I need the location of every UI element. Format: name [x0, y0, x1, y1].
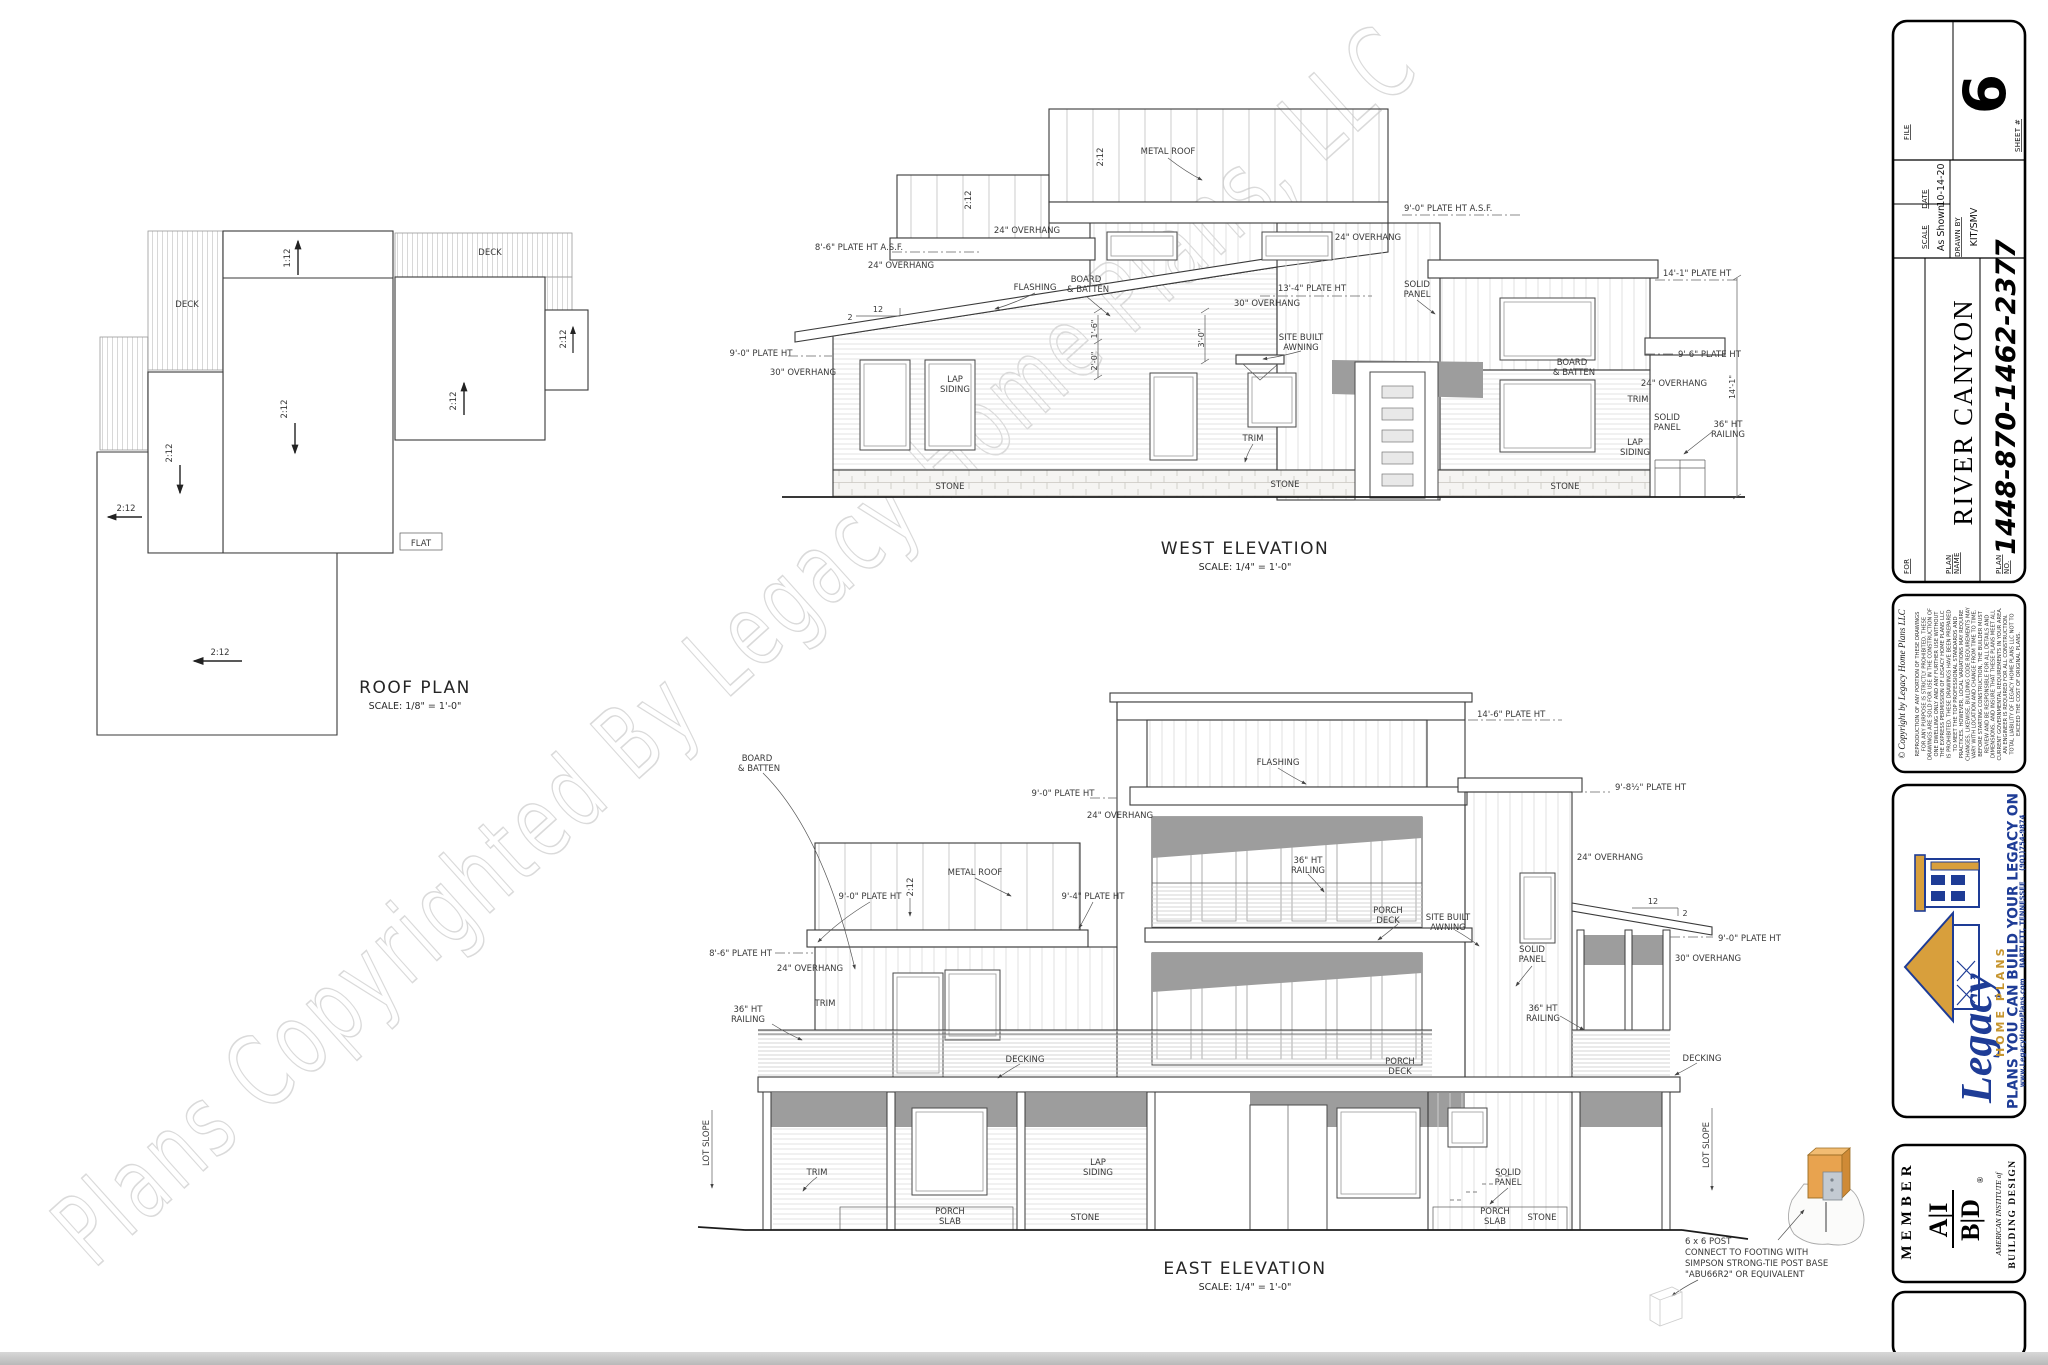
label-rail36-2: RAILING	[1291, 866, 1325, 876]
title-block-column: FILE SHEET # 6 DATE 10-14-20 SCALE As Sh…	[1870, 0, 2048, 1365]
deck-label-left: DECK	[175, 300, 199, 310]
label-overhang30: 30" OVERHANG	[1675, 954, 1741, 964]
label-site-built-2: AWNING	[1283, 343, 1319, 353]
copyright-disclaimer: REPRODUCTION OF ANY PORTION OF THESE DRA…	[1915, 606, 2022, 760]
title-block: FILE SHEET # 6 DATE 10-14-20 SCALE As Sh…	[1893, 21, 2025, 582]
label-slope: 2:12	[906, 877, 916, 896]
label-solid: SOLID	[1654, 413, 1680, 423]
empty-block	[1893, 1292, 2025, 1358]
label-siding: SIDING	[940, 385, 970, 395]
legacy-logo-block: Legacy HOME PLANS PLANS YOU CAN BUILD YO…	[1893, 785, 2027, 1117]
disclaimer-line: EXCEED THE COST OF ORIGINAL PLANS.	[2016, 632, 2022, 736]
west-scale: SCALE: 1/4" = 1'-0"	[1199, 562, 1292, 573]
disclaimer-line: IS PROHIBITED. THESE DRAWINGS HAVE BEEN …	[1947, 610, 1953, 759]
post-note-line4: "ABU66R2" OR EQUIVALENT	[1685, 1270, 1805, 1280]
label-board: BOARD	[742, 754, 773, 764]
label-metal-roof: METAL ROOF	[1141, 147, 1196, 157]
roof-plan-title: ROOF PLAN	[359, 678, 471, 698]
label-overhang30: 30" OVERHANG	[1234, 299, 1300, 309]
slope-2-12-bottom: 2:12	[210, 648, 229, 658]
label-plate-90: 9'-0" PLATE HT	[730, 349, 794, 359]
label-lap: LAP	[1090, 1158, 1106, 1168]
slope-1-12: 1:12	[283, 248, 293, 267]
label-rail36-1: 36" HT	[1528, 1004, 1558, 1014]
label-trim: TRIM	[806, 1168, 828, 1178]
roof-plan-scale: SCALE: 1/8" = 1'-0"	[369, 701, 462, 712]
label-solid: SOLID	[1404, 280, 1430, 290]
label-site-built-1: SITE BUILT	[1426, 913, 1471, 923]
drawn-by-label: DRAWN BY	[1954, 217, 1962, 257]
west-title: WEST ELEVATION	[1161, 539, 1329, 559]
date-label: DATE	[1921, 189, 1929, 208]
disclaimer-line: TO MEET THE TOP PROFESSIONAL STANDARDS A…	[1953, 617, 1959, 753]
label-plate-90: 9'-0" PLATE HT	[1718, 934, 1782, 944]
aibd-reg: ®	[1976, 1176, 1985, 1184]
scan-edge-bottom	[0, 1352, 2048, 1365]
label-panel: PANEL	[1519, 955, 1546, 965]
legacy-website: www.LegacyHomePlans.com	[2019, 978, 2027, 1087]
label-slab: SLAB	[939, 1217, 961, 1227]
label-rail36-2: RAILING	[731, 1015, 765, 1025]
disclaimer-line: REPRODUCTION OF ANY PORTION OF THESE DRA…	[1915, 612, 1921, 757]
label-slab: SLAB	[1484, 1217, 1506, 1227]
date-value: 10-14-20	[1936, 163, 1947, 206]
label-flashing: FLASHING	[1014, 283, 1057, 293]
dim-1-6: 1'-6"	[1090, 320, 1099, 339]
svg-text:www.LegacyHomePlans.com: www.LegacyHomePlans.com BARTLETT, TENNES…	[2019, 814, 2027, 1087]
label-stone: STONE	[1070, 1213, 1099, 1223]
east-scale: SCALE: 1/4" = 1'-0"	[1199, 1282, 1292, 1293]
disclaimer-line: VARY WITH LOCATION AND CHANGE FROM TIME …	[1972, 609, 1978, 758]
label-panel: PANEL	[1495, 1178, 1522, 1188]
label-rail36-2: RAILING	[1711, 430, 1745, 440]
label-flashing: FLASHING	[1257, 758, 1300, 768]
west-elevation: METAL ROOF 2:12 2:12 9'-0" PLATE HT A.S.…	[560, 60, 1780, 590]
label-site-built-2: AWNING	[1430, 923, 1466, 933]
dim-2-0: 2'-0"	[1090, 352, 1099, 371]
for-label: FOR	[1903, 559, 1911, 574]
label-plate-985: 9'-8½" PLATE HT	[1615, 783, 1687, 793]
copyright-block: © Copyright by Legacy Home Plans LLC REP…	[1893, 595, 2025, 772]
label-solid: SOLID	[1519, 945, 1545, 955]
sheet-number: 6	[1951, 74, 2019, 114]
label-12: 12	[873, 305, 883, 314]
disclaimer-line: TOTAL LIABILITY OF LEGACY HOME PLANS LLC…	[2010, 613, 2016, 755]
label-decking: DECKING	[1683, 1054, 1722, 1064]
label-plate-134: 13'-4" PLATE HT	[1278, 284, 1347, 294]
disclaimer-line: REVIEW AND BE RESPONSIBLE FOR ALL DETAIL…	[1984, 615, 1990, 754]
east-title: EAST ELEVATION	[1163, 1259, 1326, 1279]
label-deck: DECK	[1376, 916, 1400, 926]
label-porch: PORCH	[1385, 1057, 1415, 1067]
label-plate-94: 9'-4" PLATE HT	[1062, 892, 1126, 902]
label-overhang24: 24" OVERHANG	[1087, 811, 1153, 821]
copyright-title: © Copyright by Legacy Home Plans LLC	[1897, 608, 1907, 758]
label-lot-slope: LOT SLOPE	[702, 1120, 712, 1166]
dim-14-1: 14'-1"	[1728, 375, 1737, 399]
scale-label: SCALE	[1921, 225, 1929, 249]
label-batten: & BATTEN	[1067, 285, 1109, 295]
aibd-member-block: MEMBER A|I B|D ® AMERICAN INSTITUTE of B…	[1893, 1145, 2025, 1282]
label-plate-90asf: 9'-0" PLATE HT A.S.F.	[1404, 204, 1492, 214]
label-porch: PORCH	[1373, 906, 1403, 916]
label-slope-left-roof: 2:12	[964, 190, 974, 209]
label-solid: SOLID	[1495, 1168, 1521, 1178]
label-plate-146: 14'-6" PLATE HT	[1477, 710, 1546, 720]
post-note-line3: SIMPSON STRONG-TIE POST BASE	[1685, 1259, 1828, 1269]
disclaimer-line: THE EXPRESS PERMISSION OF LEGACY HOME PL…	[1940, 610, 1946, 758]
label-overhang24: 24" OVERHANG	[994, 226, 1060, 236]
disclaimer-line: FOR ANY PURPOSE IS STRICTLY PROHIBITED. …	[1921, 617, 1927, 751]
label-panel: PANEL	[1654, 423, 1681, 433]
label-overhang30: 30" OVERHANG	[770, 368, 836, 378]
post-footing-detail: 6 x 6 POST CONNECT TO FOOTING WITH SIMPS…	[1650, 1148, 1864, 1326]
slope-2-12-main: 2:12	[280, 399, 290, 418]
member-label: MEMBER	[1899, 1160, 1915, 1259]
plan-name-label-1: PLAN	[1945, 554, 1953, 574]
roof-plan-geometry	[97, 231, 588, 735]
label-batten: & BATTEN	[1553, 368, 1595, 378]
label-plate-90: 9'-0" PLATE HT	[839, 892, 903, 902]
post-note-line2: CONNECT TO FOOTING WITH	[1685, 1248, 1808, 1258]
disclaimer-line: CURRENT GOVERNMENTAL REQUIREMENTS IN YOU…	[1997, 607, 2003, 760]
label-overhang24: 24" OVERHANG	[868, 261, 934, 271]
dim-3-0: 3'-0"	[1197, 329, 1206, 348]
label-overhang24: 24" OVERHANG	[1641, 379, 1707, 389]
label-trim: TRIM	[1627, 395, 1649, 405]
disclaimer-line: PRACTICES. HOWEVER, LOCAL VARIATIONS MAY…	[1959, 610, 1965, 759]
label-site-built-1: SITE BUILT	[1279, 333, 1324, 343]
label-plate-96: 9'-6" PLATE HT	[1678, 350, 1742, 360]
label-2: 2	[847, 313, 852, 322]
label-rail36-2: RAILING	[1526, 1014, 1560, 1024]
label-stone: STONE	[935, 482, 964, 492]
label-stone: STONE	[1550, 482, 1579, 492]
label-stone: STONE	[1527, 1213, 1556, 1223]
disclaimer-line: DIMENSIONS, AND INSURE THAT THESE PLANS …	[1991, 610, 1997, 758]
label-overhang24: 24" OVERHANG	[1577, 853, 1643, 863]
label-trim: TRIM	[814, 999, 836, 1009]
plan-sheet: Plans Copyrighted By Legacy Home Plans, …	[0, 0, 2048, 1365]
plan-name-label-2: NAME	[1953, 552, 1961, 574]
drawn-by-value: KIT/SMV	[1969, 207, 1980, 246]
aibd-line1: AMERICAN INSTITUTE of	[1994, 1172, 2003, 1257]
file-label: FILE	[1903, 124, 1911, 140]
label-deck: DECK	[1388, 1067, 1412, 1077]
disclaimer-line: CHANGES. LIKEWISE, BUILDING CODE REQUIRE…	[1965, 606, 1971, 760]
label-decking: DECKING	[1006, 1055, 1045, 1065]
disclaimer-line: BEFORE STARTING CONSTRUCTION, THE BUILDE…	[1978, 610, 1984, 756]
plan-name: RIVER CANYON	[1948, 298, 1978, 525]
aibd-bottom: B|D	[1956, 1199, 1985, 1241]
label-plate-90: 9'-0" PLATE HT	[1032, 789, 1096, 799]
label-plate-141: 14'-1" PLATE HT	[1663, 269, 1732, 279]
label-trim: TRIM	[1242, 434, 1264, 444]
disclaimer-line: DRAWINGS ARE SOLD FOR USE IN THE CONSTRU…	[1928, 608, 1934, 760]
aibd-top: A|I	[1924, 1203, 1953, 1238]
label-plate-86: 8'-6" PLATE HT	[709, 949, 773, 959]
label-board: BOARD	[1071, 275, 1102, 285]
slope-2-12-right: 2:12	[449, 391, 459, 410]
slope-2-12-leftmid: 2:12	[165, 443, 175, 462]
post-note: 6 x 6 POST CONNECT TO FOOTING WITH SIMPS…	[1685, 1237, 1828, 1280]
legacy-city: BARTLETT, TENNESSEE	[2019, 881, 2027, 968]
label-overhang24: 24" OVERHANG	[777, 964, 843, 974]
flat-label: FLAT	[411, 539, 432, 549]
plan-no-label-2: NO.	[2003, 560, 2011, 574]
label-siding: SIDING	[1620, 448, 1650, 458]
label-12: 12	[1648, 897, 1658, 906]
east-geometry	[698, 693, 1748, 1239]
label-2: 2	[1682, 909, 1687, 918]
deck-label-right: DECK	[478, 248, 502, 258]
sheet-number-label: SHEET #	[2014, 119, 2022, 152]
plan-no: 1448-870-1462-2377	[1991, 239, 2022, 555]
label-lot-slope: LOT SLOPE	[1702, 1122, 1712, 1168]
legacy-phone: (901)754-9874	[2019, 814, 2027, 871]
label-batten: & BATTEN	[738, 764, 780, 774]
west-stair-railing	[1655, 460, 1705, 497]
label-lap: LAP	[1627, 438, 1643, 448]
slope-2-12-west: 2:12	[116, 504, 135, 514]
scale-value: As Shown	[1936, 205, 1947, 251]
east-elevation: 14'-6" PLATE HT FLASHING 9'-0" PLATE HT …	[520, 640, 1880, 1340]
disclaimer-line: ONE DWELLING ONLY AND ANY FURTHER USE WI…	[1934, 611, 1940, 757]
label-board: BOARD	[1557, 358, 1588, 368]
label-slope: 2:12	[1096, 147, 1106, 166]
label-stone: STONE	[1270, 480, 1299, 490]
disclaimer-line: AN ENGINEER IS REQUIRED FOR ALL CONSTRUC…	[2003, 614, 2009, 754]
plan-no-label-1: PLAN	[1995, 554, 2003, 574]
label-panel: PANEL	[1404, 290, 1431, 300]
label-plate-86asf: 8'-6" PLATE HT A.S.F.	[815, 243, 903, 253]
label-rail36-1: 36" HT	[733, 1005, 763, 1015]
label-porch: PORCH	[935, 1207, 965, 1217]
label-rail36-1: 36" HT	[1713, 420, 1743, 430]
label-siding: SIDING	[1083, 1168, 1113, 1178]
label-overhang24: 24" OVERHANG	[1335, 233, 1401, 243]
label-rail36-1: 36" HT	[1293, 856, 1323, 866]
aibd-line2: BUILDING DESIGN	[2008, 1159, 2018, 1268]
label-porch: PORCH	[1480, 1207, 1510, 1217]
label-lap: LAP	[947, 375, 963, 385]
label-metal-roof: METAL ROOF	[948, 868, 1003, 878]
post-note-line1: 6 x 6 POST	[1685, 1237, 1732, 1247]
